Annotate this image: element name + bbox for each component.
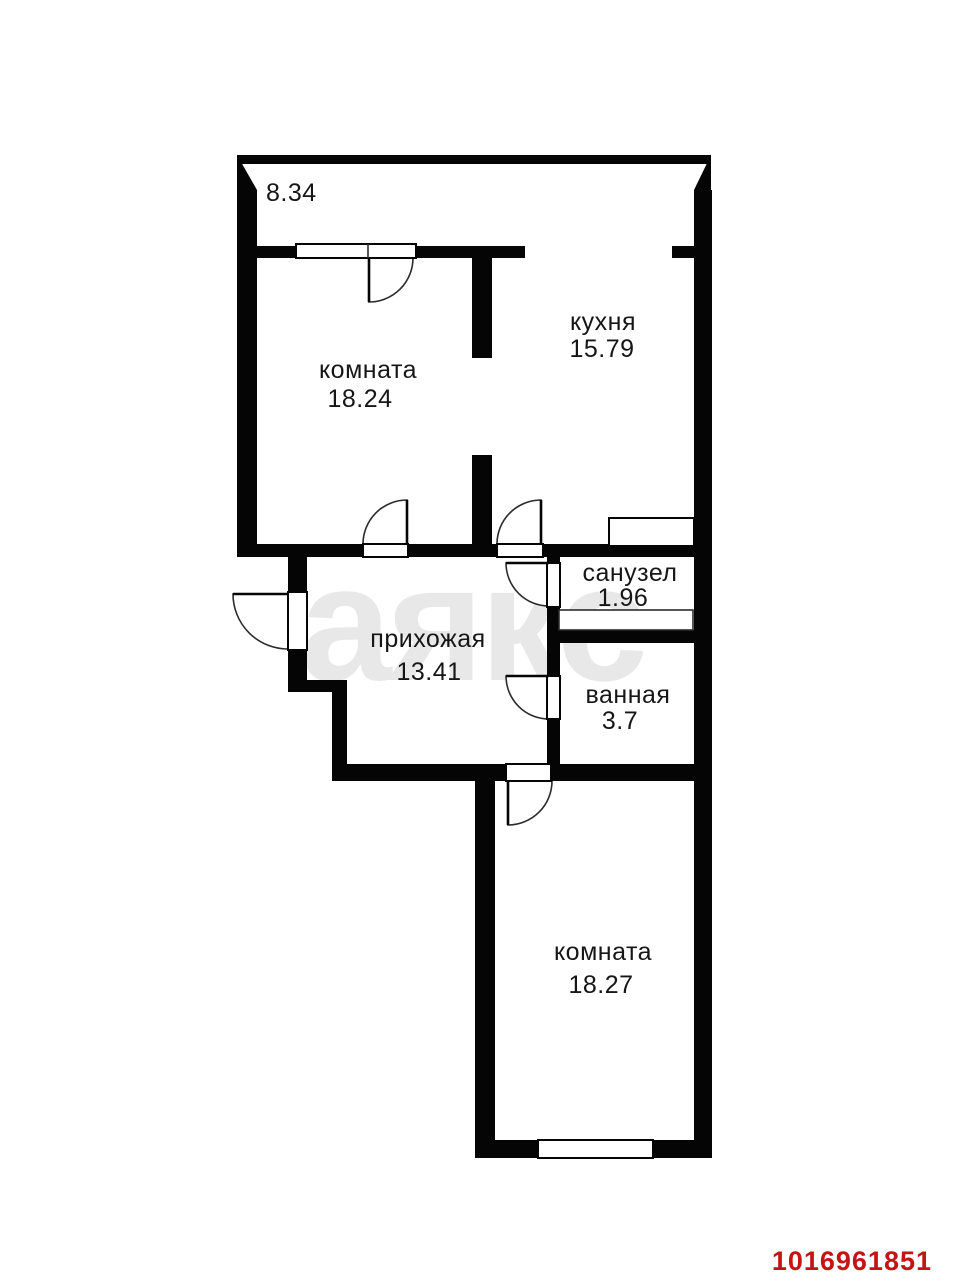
kitchen-door-threshold [497,544,543,557]
floor-plan-svg: аякс [0,0,954,1280]
balcony-wall-seg-a [237,246,296,258]
bath-area-label: 3.7 [602,707,638,735]
divider-lower [472,455,492,555]
divider-upper [472,246,492,358]
listing-id: 1016961851 [772,1246,932,1276]
wc-bath-divider [547,630,694,643]
mid-wall-seg-b [408,544,497,557]
mid-wall-seg-a [237,544,363,557]
left-outer-wall [237,190,257,556]
room1-name-label: комната [319,356,417,384]
wc-name-label: санузел [582,559,677,587]
room1-door-threshold [363,544,408,557]
room2-name-label: комната [554,938,652,966]
balcony-window-block [296,244,416,258]
hall-area-label: 13.41 [396,658,461,686]
wc-shaft [559,610,693,630]
bath-bottom-wall [551,764,694,781]
entrance-door-frame [288,592,307,650]
hall-bottom-wall [332,764,497,781]
balcony-top-wall [237,155,711,164]
room2-left-wall [475,764,495,1158]
balcony-area-label: 8.34 [266,179,317,207]
floor-plan-page: аякс [0,0,954,1280]
bath-name-label: ванная [586,681,671,709]
bath-door-frame [547,676,560,719]
hall-left-wall-upper [288,556,307,592]
room2-window [538,1140,653,1158]
wc-door-frame [547,563,560,607]
hall-name-label: прихожая [370,625,485,653]
wc-area-label: 1.96 [598,584,649,612]
room1-area-label: 18.24 [327,385,392,413]
kitchen-area-label: 15.79 [569,335,634,363]
room2-door-threshold [506,764,551,781]
kitchen-name-label: кухня [570,308,636,336]
room2-area-label: 18.27 [568,971,633,999]
balcony-wall-seg-c [672,246,694,258]
vent-box [609,518,694,546]
bath-left-wall-lower [547,719,560,765]
right-outer-wall [694,190,712,1158]
balcony-wall-seg-b [416,246,525,258]
room2-top-stub [495,764,506,781]
